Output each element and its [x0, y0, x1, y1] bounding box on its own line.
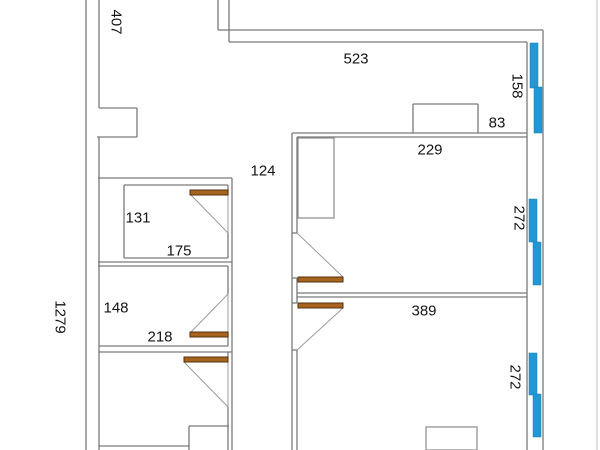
window-marker [529, 199, 537, 242]
dimension-label: 158 [510, 73, 525, 98]
door-panel [184, 357, 228, 362]
dimension-label: 218 [147, 330, 172, 345]
furniture-outline [298, 138, 334, 218]
window-marker [529, 353, 537, 395]
floor-plan-canvas: 4075231588322912413117512791482182723892… [0, 0, 600, 450]
window-marker [530, 43, 538, 88]
furniture-outline [426, 427, 477, 450]
door-panel [298, 303, 343, 308]
dimension-label: 124 [250, 164, 275, 179]
dimension-label: 175 [166, 244, 191, 259]
door-panel [190, 332, 228, 337]
window-marker [533, 242, 541, 285]
dimension-label: 523 [343, 52, 368, 67]
door-swing-line [191, 195, 228, 233]
door-swing-line [297, 233, 343, 277]
dimension-label: 389 [411, 304, 436, 319]
door-swing-line [297, 308, 343, 350]
door-swing-line [191, 294, 228, 332]
dimension-label: 83 [489, 116, 506, 131]
dimension-label: 148 [103, 301, 128, 316]
dimension-label: 1279 [53, 300, 68, 333]
door-panel [190, 190, 228, 195]
dimension-label: 131 [125, 211, 150, 226]
dimension-label: 272 [512, 205, 527, 230]
door-panel [298, 277, 343, 282]
dimension-label: 229 [417, 143, 442, 158]
window-marker [534, 87, 542, 133]
window-marker [533, 394, 541, 437]
dimension-label: 272 [508, 364, 523, 389]
door-swing-line [184, 362, 228, 407]
dimension-label: 407 [109, 9, 124, 34]
